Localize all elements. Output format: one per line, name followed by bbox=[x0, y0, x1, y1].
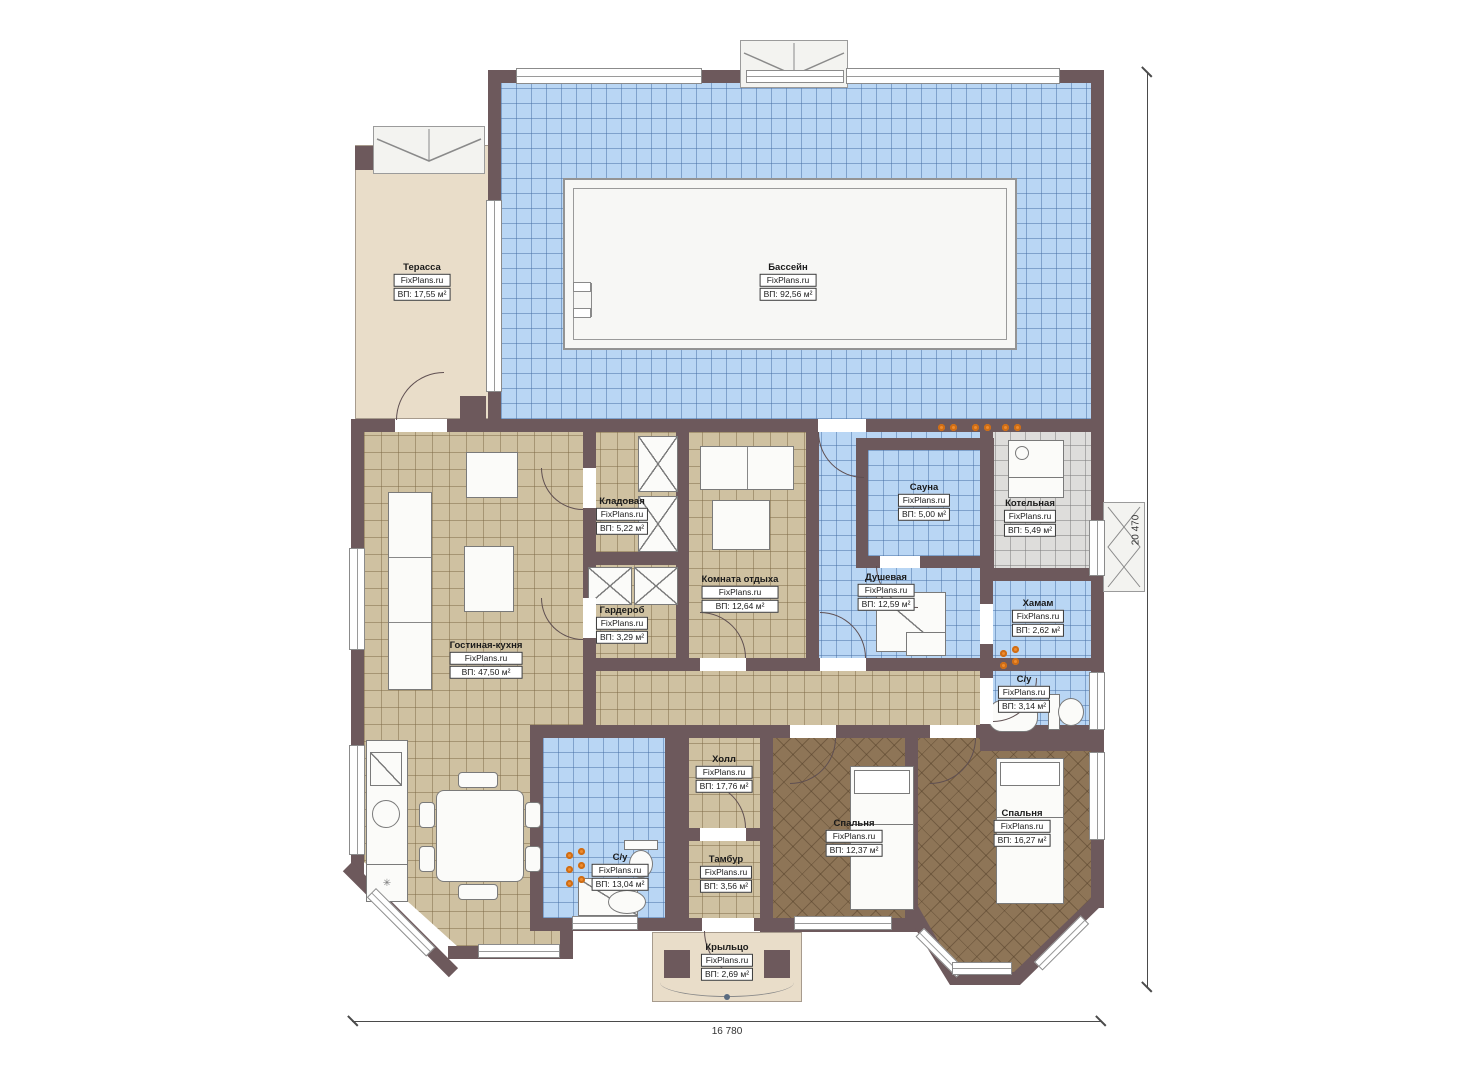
room-label-bathroom-left: С/у FixPlans.ru ВП: 13,04 м² bbox=[592, 853, 649, 891]
terrace-pier bbox=[460, 396, 486, 420]
porch-node bbox=[724, 994, 730, 1000]
brand-watermark: FixPlans.ru bbox=[998, 686, 1050, 699]
heat-marker-icon bbox=[1012, 646, 1019, 653]
door-gap bbox=[790, 725, 836, 738]
heat-marker-icon bbox=[1014, 424, 1021, 431]
room-area: ВП: 16,27 м² bbox=[994, 834, 1051, 847]
wall-partition bbox=[980, 568, 1104, 581]
room-area: ВП: 2,62 м² bbox=[1012, 624, 1064, 637]
brand-watermark: FixPlans.ru bbox=[696, 766, 753, 779]
wall-partition bbox=[583, 658, 596, 738]
room-area: ВП: 5,00 м² bbox=[898, 508, 950, 521]
door-gap bbox=[583, 598, 596, 638]
room-label-bedroom-2: Спальня FixPlans.ru ВП: 16,27 м² bbox=[994, 809, 1051, 847]
dimension-line-right bbox=[1147, 72, 1148, 987]
room-area: ВП: 92,56 м² bbox=[760, 288, 817, 301]
dimension-label-width: 16 780 bbox=[712, 1026, 743, 1037]
heat-marker-icon bbox=[1002, 424, 1009, 431]
room-area: ВП: 2,69 м² bbox=[701, 968, 753, 981]
room-name: С/у bbox=[998, 675, 1050, 685]
wall-partition bbox=[806, 432, 819, 671]
room-label-wardrobe: Гардероб FixPlans.ru ВП: 3,29 м² bbox=[596, 606, 648, 644]
room-label-lounge: Комната отдыха FixPlans.ru ВП: 12,64 м² bbox=[702, 575, 779, 613]
room-name: Терасса bbox=[394, 263, 451, 273]
room-name: Спальня bbox=[994, 809, 1051, 819]
room-area: ВП: 12,37 м² bbox=[826, 844, 883, 857]
heat-marker-icon bbox=[1000, 650, 1007, 657]
room-label-wc-right: С/у FixPlans.ru ВП: 3,14 м² bbox=[998, 675, 1050, 713]
chair bbox=[458, 884, 498, 900]
window bbox=[1089, 752, 1105, 840]
window bbox=[846, 68, 1060, 84]
sofa bbox=[388, 492, 432, 690]
door-gap bbox=[395, 419, 447, 432]
heat-marker-icon bbox=[578, 848, 585, 855]
table bbox=[712, 500, 770, 550]
window bbox=[1089, 672, 1105, 730]
chair bbox=[525, 802, 541, 828]
door-gap bbox=[930, 725, 976, 738]
room-area: ВП: 12,59 м² bbox=[858, 598, 915, 611]
heat-marker-icon bbox=[984, 424, 991, 431]
room-label-hammam: Хамам FixPlans.ru ВП: 2,62 м² bbox=[1012, 599, 1064, 637]
dimension-line-bottom bbox=[352, 1021, 1102, 1022]
window bbox=[516, 68, 702, 84]
brand-watermark: FixPlans.ru bbox=[592, 864, 649, 877]
wall-segment bbox=[351, 419, 1104, 432]
chair bbox=[419, 846, 435, 872]
brand-watermark: FixPlans.ru bbox=[760, 274, 817, 287]
room-area: ВП: 17,55 м² bbox=[394, 288, 451, 301]
pool-ladder-icon bbox=[573, 282, 591, 292]
brand-watermark: FixPlans.ru bbox=[701, 954, 753, 967]
heat-marker-icon bbox=[972, 424, 979, 431]
door-gap bbox=[583, 468, 596, 508]
sofa bbox=[700, 446, 794, 490]
window bbox=[349, 548, 365, 650]
heat-marker-icon bbox=[578, 876, 585, 883]
door-gap bbox=[702, 918, 754, 931]
heat-marker-icon bbox=[566, 880, 573, 887]
room-area: ВП: 3,14 м² bbox=[998, 700, 1050, 713]
room-name: Холл bbox=[696, 755, 753, 765]
wall-partition bbox=[980, 738, 1104, 751]
boiler-line bbox=[1009, 477, 1063, 478]
heat-marker-icon bbox=[578, 862, 585, 869]
room-name: Хамам bbox=[1012, 599, 1064, 609]
room-name: Бассейн bbox=[760, 263, 817, 273]
room-label-living-kitchen: Гостиная-кухня FixPlans.ru ВП: 47,50 м² bbox=[450, 641, 523, 679]
canopy-icon bbox=[373, 126, 485, 174]
pool-ladder-icon bbox=[573, 308, 591, 318]
toilet-tank-icon bbox=[624, 840, 658, 850]
heat-marker-icon bbox=[1000, 662, 1007, 669]
pool-ladder-rail bbox=[591, 283, 592, 317]
room-area: ВП: 12,64 м² bbox=[702, 600, 779, 613]
door-gap bbox=[980, 604, 993, 644]
room-name: Крыльцо bbox=[701, 943, 753, 953]
brand-watermark: FixPlans.ru bbox=[898, 494, 950, 507]
kitchen-sink-icon bbox=[372, 800, 400, 828]
heat-marker-icon bbox=[938, 424, 945, 431]
shelf-icon bbox=[638, 436, 678, 492]
brand-watermark: FixPlans.ru bbox=[1004, 510, 1056, 523]
brand-watermark: FixPlans.ru bbox=[450, 652, 523, 665]
boiler-unit bbox=[1008, 440, 1064, 498]
brand-watermark: FixPlans.ru bbox=[702, 586, 779, 599]
brand-watermark: FixPlans.ru bbox=[858, 584, 915, 597]
heat-marker-icon bbox=[1012, 658, 1019, 665]
door-gap bbox=[820, 658, 866, 671]
terrace-pier bbox=[355, 146, 375, 170]
room-label-vestibule: Тамбур FixPlans.ru ВП: 3,56 м² bbox=[700, 855, 752, 893]
boiler-dial-icon bbox=[1015, 446, 1029, 460]
room-name: Кладовая bbox=[596, 497, 648, 507]
toilet-bowl-icon bbox=[1058, 698, 1084, 726]
room-name: Сауна bbox=[898, 483, 950, 493]
room-label-boiler: Котельная FixPlans.ru ВП: 5,49 м² bbox=[1004, 499, 1056, 537]
room-name: Гардероб bbox=[596, 606, 648, 616]
door-gap bbox=[700, 658, 746, 671]
room-area: ВП: 3,56 м² bbox=[700, 880, 752, 893]
terrace-slider-window bbox=[486, 200, 502, 392]
room-label-shower: Душевая FixPlans.ru ВП: 12,59 м² bbox=[858, 573, 915, 611]
room-label-pool: Бассейн FixPlans.ru ВП: 92,56 м² bbox=[760, 263, 817, 301]
appliance bbox=[906, 632, 946, 656]
room-label-bedroom-1: Спальня FixPlans.ru ВП: 12,37 м² bbox=[826, 819, 883, 857]
door-gap bbox=[700, 828, 746, 841]
room-name: Котельная bbox=[1004, 499, 1056, 509]
room-name: Спальня bbox=[826, 819, 883, 829]
room-area: ВП: 47,50 м² bbox=[450, 666, 523, 679]
room-name: Душевая bbox=[858, 573, 915, 583]
boiler-exterior-door bbox=[1089, 520, 1105, 576]
chair bbox=[525, 846, 541, 872]
room-label-terrace: Терасса FixPlans.ru ВП: 17,55 м² bbox=[394, 263, 451, 301]
brand-watermark: FixPlans.ru bbox=[1012, 610, 1064, 623]
heat-marker-icon bbox=[566, 866, 573, 873]
armchair bbox=[466, 452, 518, 498]
room-area: ВП: 3,29 м² bbox=[596, 631, 648, 644]
bed-pillow bbox=[1000, 762, 1060, 786]
chair bbox=[419, 802, 435, 828]
brand-watermark: FixPlans.ru bbox=[826, 830, 883, 843]
window bbox=[572, 916, 638, 930]
wardrobe-icon bbox=[634, 567, 678, 605]
room-area: ВП: 5,49 м² bbox=[1004, 524, 1056, 537]
room-label-storage: Кладовая FixPlans.ru ВП: 5,22 м² bbox=[596, 497, 648, 535]
bay-window bbox=[952, 962, 1012, 975]
heat-marker-icon bbox=[566, 852, 573, 859]
window bbox=[794, 916, 892, 930]
brand-watermark: FixPlans.ru bbox=[596, 508, 648, 521]
sink-icon bbox=[608, 890, 646, 914]
room-area: ВП: 17,76 м² bbox=[696, 780, 753, 793]
room-label-sauna: Сауна FixPlans.ru ВП: 5,00 м² bbox=[898, 483, 950, 521]
entry-door-opening bbox=[746, 70, 844, 83]
room-label-porch: Крыльцо FixPlans.ru ВП: 2,69 м² bbox=[701, 943, 753, 981]
chair bbox=[458, 772, 498, 788]
room-name: Гостиная-кухня bbox=[450, 641, 523, 651]
window bbox=[478, 944, 560, 958]
bed-pillow bbox=[854, 770, 910, 794]
window bbox=[349, 745, 365, 855]
door-gap bbox=[818, 419, 866, 432]
dining-table bbox=[436, 790, 524, 882]
room-name: Комната отдыха bbox=[702, 575, 779, 585]
room-area: ВП: 13,04 м² bbox=[592, 878, 649, 891]
brand-watermark: FixPlans.ru bbox=[596, 617, 648, 630]
brand-watermark: FixPlans.ru bbox=[700, 866, 752, 879]
coffee-table bbox=[464, 546, 514, 612]
room-label-hall: Холл FixPlans.ru ВП: 17,76 м² bbox=[696, 755, 753, 793]
dimension-label-height: 20 470 bbox=[1131, 515, 1142, 546]
kitchen-stove-icon bbox=[370, 752, 402, 786]
wall-partition bbox=[583, 552, 689, 565]
room-name: С/у bbox=[592, 853, 649, 863]
door-gap bbox=[980, 678, 993, 724]
room-area: ВП: 5,22 м² bbox=[596, 522, 648, 535]
wall-partition bbox=[676, 725, 1104, 738]
floor-plan: ✳ bbox=[0, 0, 1474, 1080]
brand-watermark: FixPlans.ru bbox=[394, 274, 451, 287]
room-name: Тамбур bbox=[700, 855, 752, 865]
brand-watermark: FixPlans.ru bbox=[994, 820, 1051, 833]
heat-marker-icon bbox=[950, 424, 957, 431]
